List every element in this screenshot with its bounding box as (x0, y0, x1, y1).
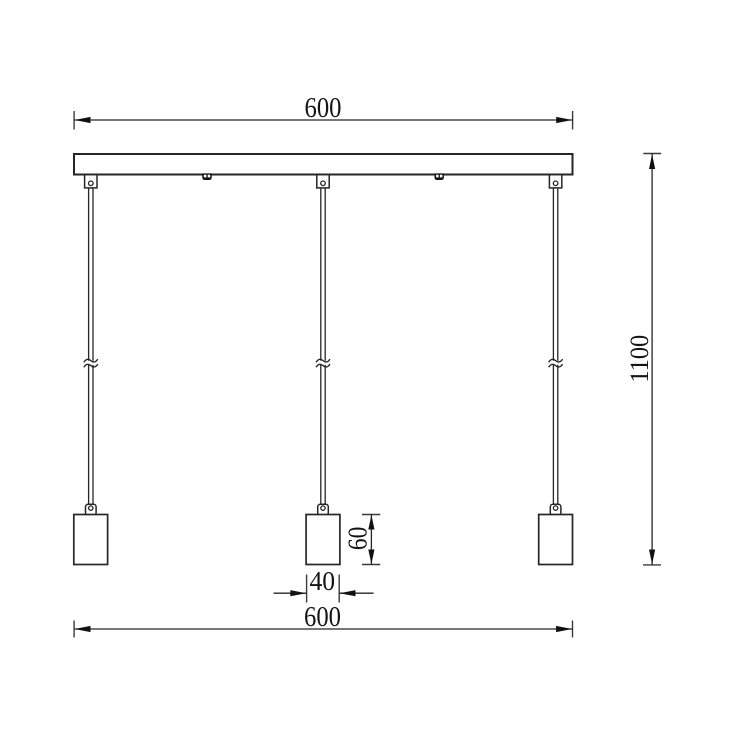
svg-text:600: 600 (305, 92, 342, 123)
svg-text:600: 600 (304, 602, 341, 633)
svg-text:60: 60 (343, 527, 373, 550)
svg-text:40: 40 (309, 566, 335, 596)
svg-text:1100: 1100 (624, 335, 654, 383)
